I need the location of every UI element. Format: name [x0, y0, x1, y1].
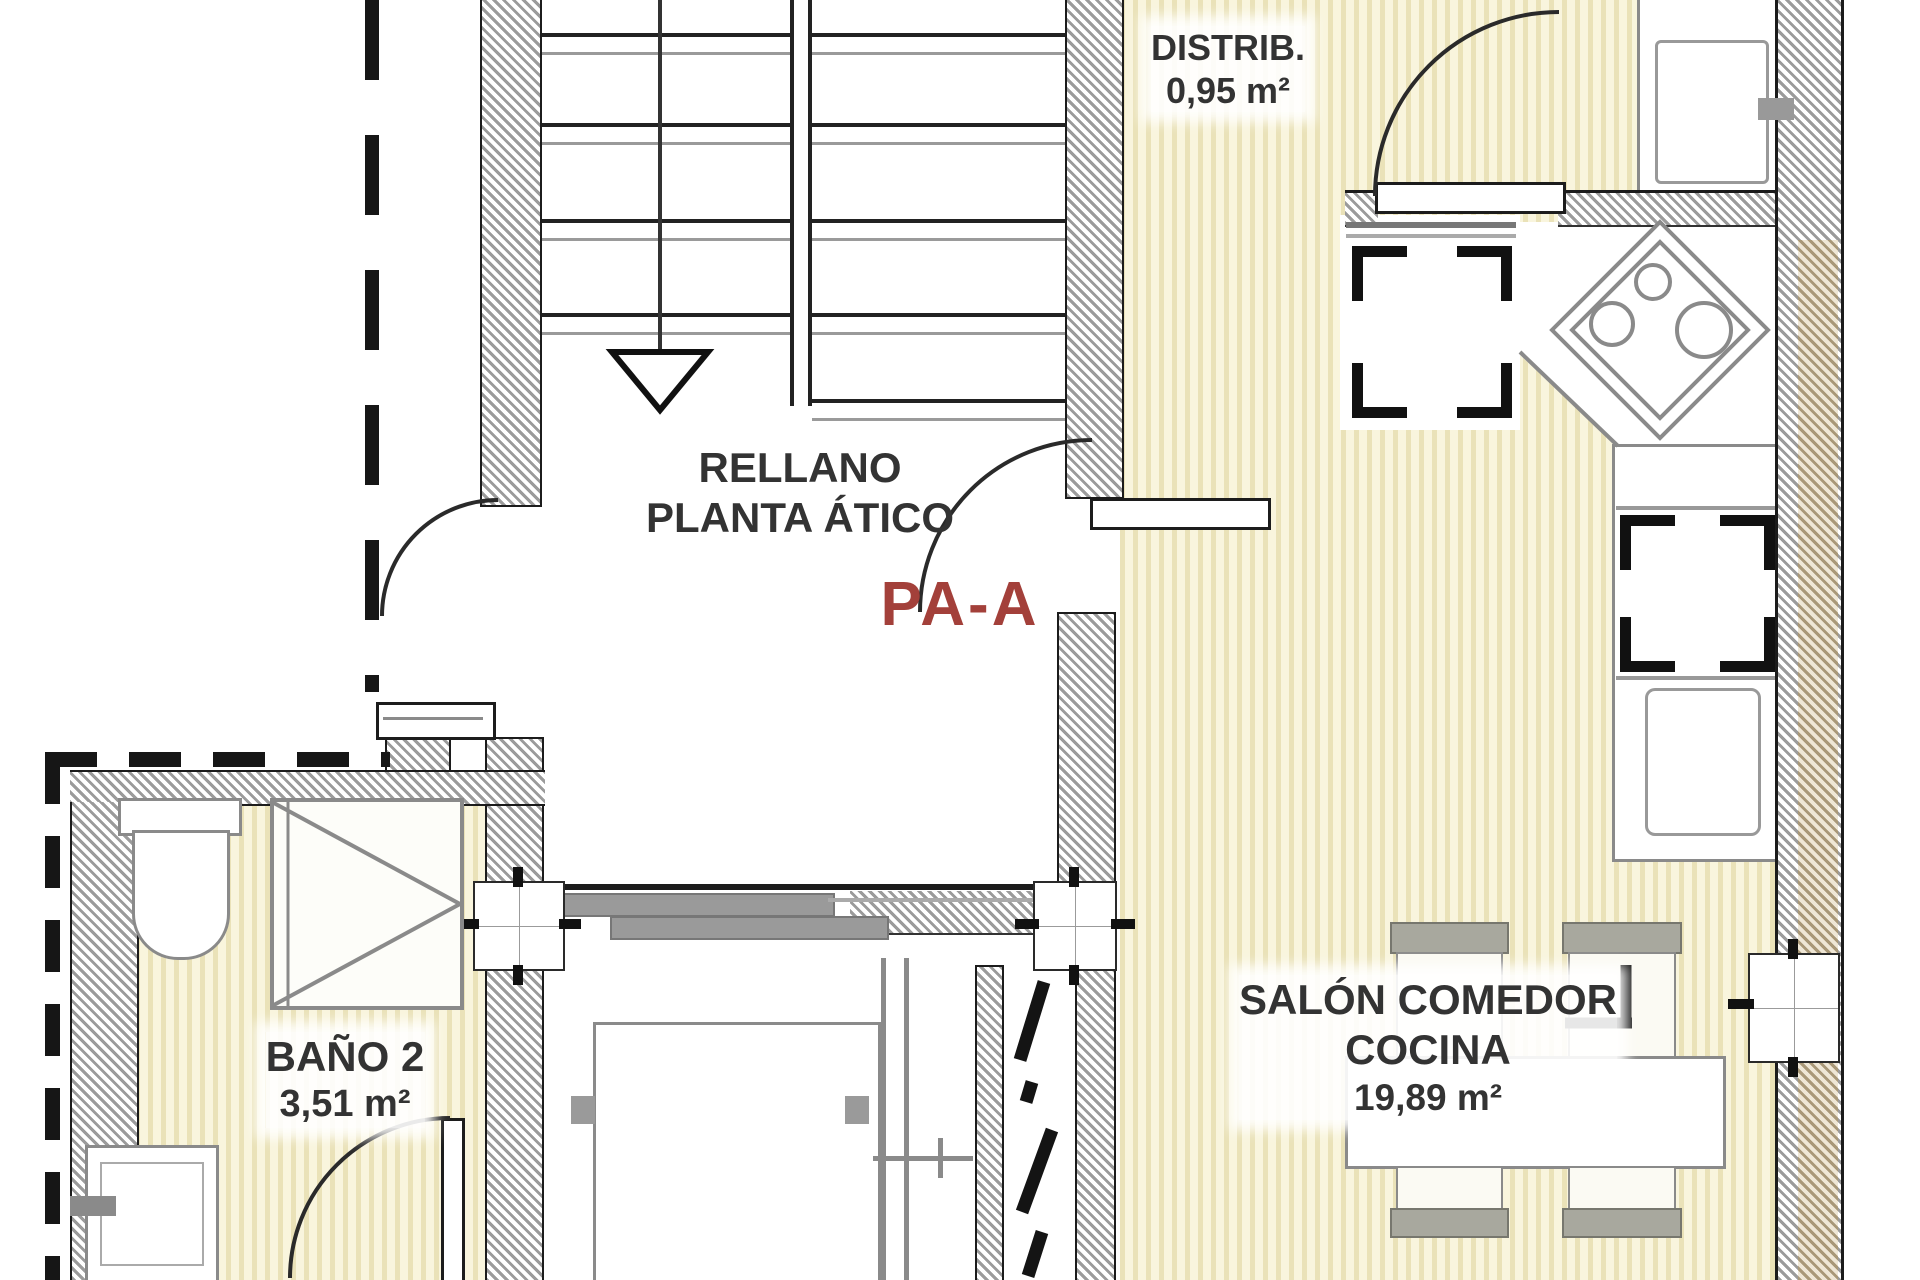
floor-plan: DISTRIB. 0,95 m² RELLANO PLANTA ÁTICO PA… [0, 0, 1920, 1280]
door-swing-arc-landing-west [382, 500, 498, 616]
shower [272, 800, 462, 1008]
room-label-salon: SALÓN COMEDOR COCINA 19,89 m² [1239, 975, 1617, 1120]
room-label-distrib: DISTRIB. 0,95 m² [1151, 26, 1305, 112]
room-name: BAÑO 2 [266, 1032, 425, 1082]
room-area: 19,89 m² [1239, 1076, 1617, 1120]
room-area: 3,51 m² [266, 1082, 425, 1128]
stove [1552, 222, 1768, 438]
room-name: RELLANO [646, 443, 954, 493]
unit-code: PA-A [881, 568, 1040, 642]
room-name: DISTRIB. [1151, 26, 1305, 69]
door-swing-arc-kitchen [1375, 12, 1559, 196]
stairs-direction-arrow-icon [612, 0, 708, 410]
room-area: 0,95 m² [1151, 69, 1305, 112]
room-name: PLANTA ÁTICO [646, 493, 954, 543]
room-name: COCINA [1239, 1025, 1617, 1075]
door-swing-arc-bathroom [290, 1118, 450, 1278]
room-name: SALÓN COMEDOR [1239, 975, 1617, 1025]
room-label-bano2: BAÑO 2 3,51 m² [266, 1032, 425, 1128]
shaft-dashed-line [1020, 982, 1052, 1276]
room-label-rellano: RELLANO PLANTA ÁTICO [646, 443, 954, 544]
